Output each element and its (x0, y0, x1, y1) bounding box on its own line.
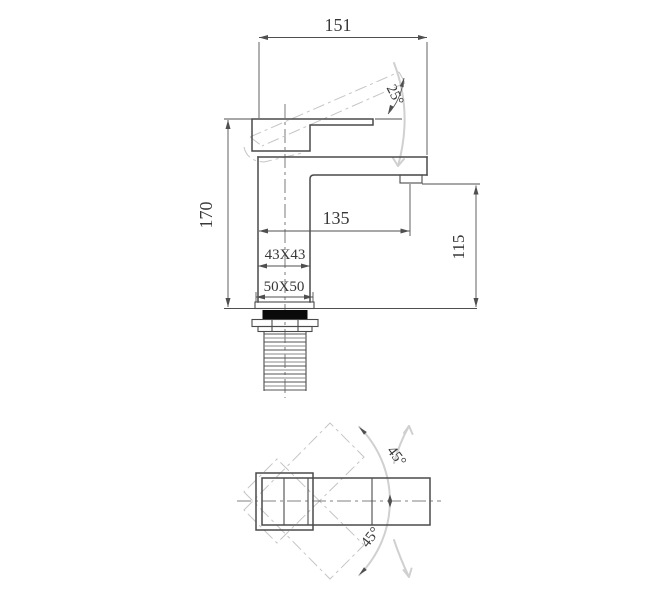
faucet-technical-drawing: 151 25° 170 135 (0, 0, 670, 600)
dim-body-section: 43X43 (258, 247, 310, 269)
dim-outlet-height: 115 (422, 184, 480, 307)
base-plate (255, 302, 314, 309)
dim-label-170: 170 (196, 202, 216, 229)
dim-handle-angle: 25° (375, 78, 406, 119)
dim-label-45-upper: 45° (383, 443, 409, 469)
dim-spout-reach: 135 (259, 184, 410, 236)
dim-base-section: 50X50 (256, 279, 313, 302)
drawing-canvas: 151 25° 170 135 (0, 0, 670, 600)
plan-view: 45° 45° (237, 423, 441, 579)
plan-outline (256, 473, 430, 530)
front-view: 151 25° 170 135 (196, 15, 480, 398)
dim-label-151: 151 (325, 15, 352, 35)
rubber-gasket (263, 311, 307, 320)
body-spout-plan (262, 478, 430, 525)
dim-label-115: 115 (449, 235, 468, 260)
dim-label-135: 135 (323, 208, 350, 228)
dim-label-43x43: 43X43 (265, 247, 306, 263)
aerator (400, 175, 422, 183)
faucet-outline (224, 119, 477, 391)
dim-label-50x50: 50X50 (264, 279, 305, 295)
